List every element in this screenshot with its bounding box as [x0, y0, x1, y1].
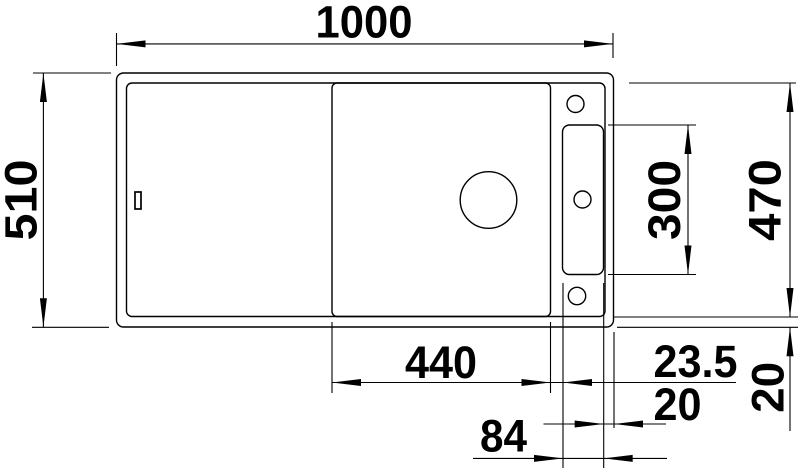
svg-text:470: 470: [740, 159, 791, 241]
svg-text:20: 20: [743, 362, 794, 413]
svg-text:300: 300: [639, 160, 690, 240]
svg-text:1000: 1000: [316, 0, 413, 48]
svg-text:440: 440: [405, 337, 477, 388]
svg-text:20: 20: [654, 379, 702, 430]
svg-text:510: 510: [0, 160, 47, 241]
svg-text:84: 84: [480, 411, 527, 462]
